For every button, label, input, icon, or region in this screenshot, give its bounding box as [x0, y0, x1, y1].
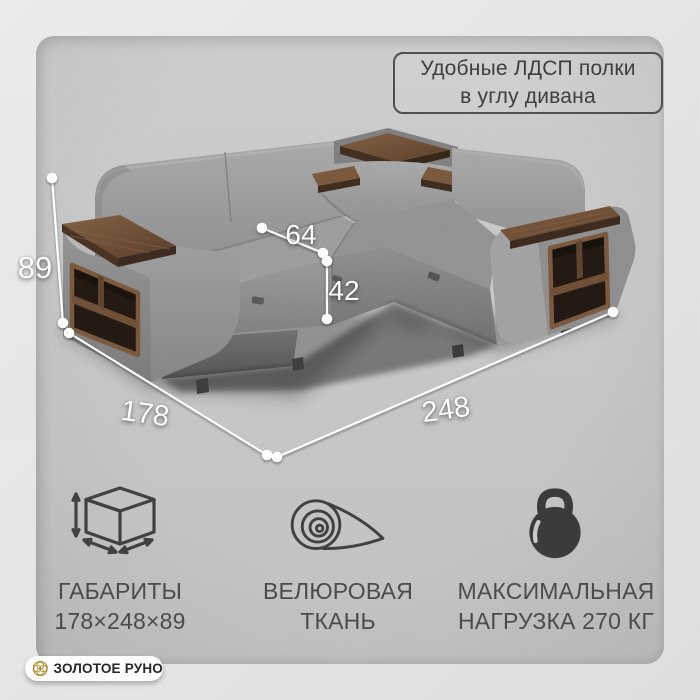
product-image: 89 64 42 178 248 Удобные ЛДСП полки в уг… — [0, 0, 700, 700]
callout-line1: Удобные ЛДСП полки — [420, 55, 635, 83]
feature-dimensions: ГАБАРИТЫ 178×248×89 — [28, 577, 212, 636]
feature-dimensions-title: ГАБАРИТЫ — [28, 577, 212, 607]
cube-dimensions-icon — [70, 484, 166, 564]
dimension-label-height: 89 — [14, 250, 56, 286]
brand-logo: ЗОЛОТОЕ РУНО — [25, 656, 163, 681]
feature-fabric-value: ТКАНЬ — [246, 607, 430, 637]
dimension-label-seat-depth: 64 — [281, 219, 321, 251]
brand-emblem-icon — [32, 660, 49, 677]
fabric-texture — [55, 120, 640, 410]
dimension-label-seat-height: 42 — [328, 275, 360, 307]
feature-dimensions-value: 178×248×89 — [28, 607, 212, 637]
fabric-roll-icon — [288, 488, 388, 554]
callout-badge: Удобные ЛДСП полки в углу дивана — [393, 52, 663, 114]
feature-max-load-value: НАГРУЗКА 270 КГ — [432, 607, 680, 637]
brand-name: ЗОЛОТОЕ РУНО — [54, 661, 163, 676]
feature-max-load-title: МАКСИМАЛЬНАЯ — [432, 577, 680, 607]
kettlebell-icon — [524, 486, 586, 560]
callout-line2: в углу дивана — [460, 83, 596, 111]
feature-fabric: ВЕЛЮРОВАЯ ТКАНЬ — [246, 577, 430, 636]
feature-fabric-title: ВЕЛЮРОВАЯ — [246, 577, 430, 607]
feature-max-load: МАКСИМАЛЬНАЯ НАГРУЗКА 270 КГ — [432, 577, 680, 636]
